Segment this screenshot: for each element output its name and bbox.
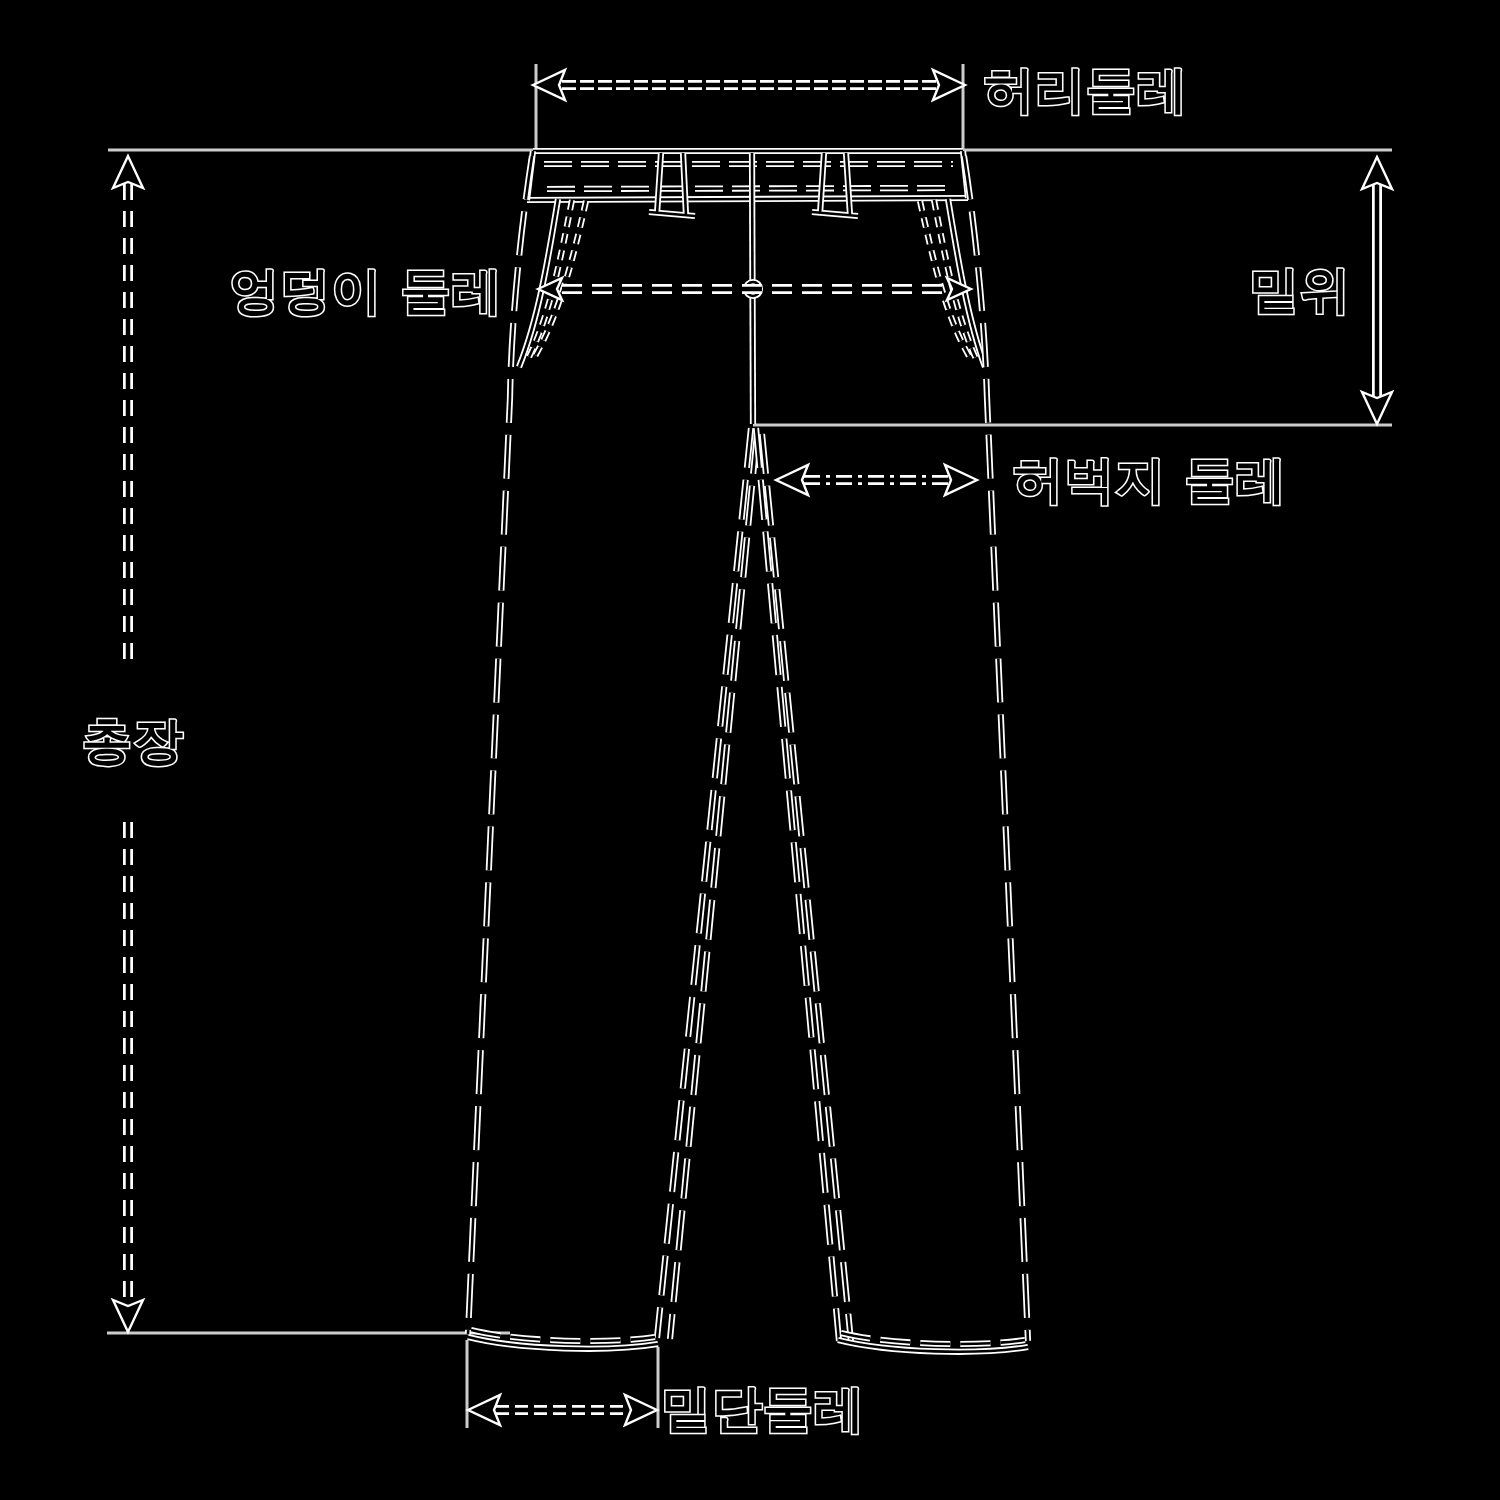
rise-arrow: [1362, 157, 1392, 424]
waist-arrow: [533, 70, 965, 100]
hem-arrow: [468, 1395, 657, 1425]
label-rise: 밑위: [1249, 261, 1351, 319]
label-thigh: 허벅지 둘레: [1013, 451, 1286, 509]
thigh-arrow-head-right: [945, 465, 977, 495]
label-waist: 허리둘레: [984, 61, 1188, 119]
waist-arrow-head-right: [933, 70, 965, 100]
thigh-arrow: [776, 465, 977, 495]
inseam-right-outer: [756, 428, 839, 1341]
inseam-left-outer: [657, 428, 751, 1338]
inseam-left-stitch: [670, 434, 757, 1339]
label-hip: 엉덩이 둘레: [229, 262, 502, 320]
total-length-head-top: [113, 156, 143, 188]
waistband-bottom-stitch: [547, 188, 948, 189]
side-seam-left: [468, 156, 532, 1334]
hem-arrow-head-right: [625, 1395, 657, 1425]
hem-right-stitch: [841, 1333, 1025, 1344]
label-hem: 밑단둘레: [661, 1380, 865, 1438]
thigh-arrow-head-left: [776, 465, 808, 495]
hem-arrow-head-left: [468, 1395, 500, 1425]
diagram-svg: 허리둘레 엉덩이 둘레 밑위 허벅지 둘레 총장 밑단둘레: [0, 0, 1500, 1500]
inseam-right-stitch: [762, 434, 851, 1342]
pants-measurement-diagram: 허리둘레 엉덩이 둘레 밑위 허벅지 둘레 총장 밑단둘레: [0, 0, 1500, 1500]
waist-arrow-head-left: [533, 70, 565, 100]
pants-outline: [468, 151, 1028, 1352]
total-length-head-bottom: [113, 1300, 143, 1332]
rise-arrow-head-bottom: [1362, 392, 1392, 424]
label-total-length: 총장: [82, 712, 184, 770]
rise-arrow-head-top: [1362, 157, 1392, 189]
